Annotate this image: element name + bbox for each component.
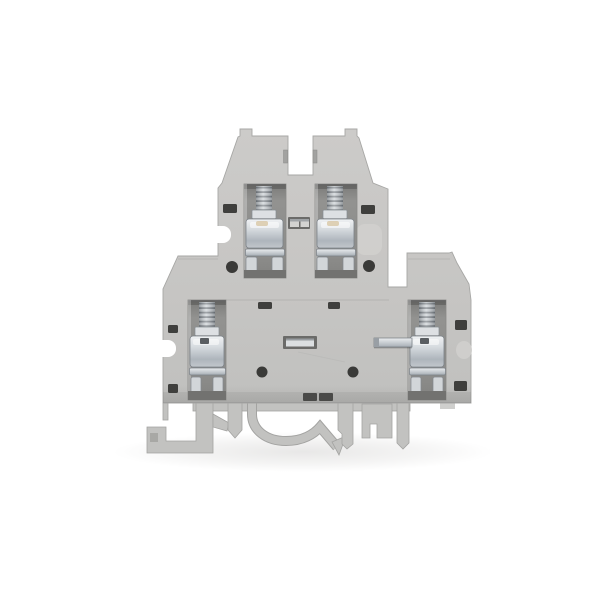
jumper-insert-shadow: [286, 339, 314, 341]
molded-recess: [456, 341, 472, 359]
vent-slot: [328, 302, 340, 309]
latch-slot: [319, 393, 333, 401]
foot-rail-end: [397, 403, 409, 449]
jumper-insert-shadow: [290, 219, 309, 222]
vent-slot: [258, 302, 272, 309]
vent-slot: [455, 320, 467, 330]
product-photo: [0, 0, 600, 600]
vent-slot: [168, 384, 178, 393]
foot-post-left: [228, 403, 242, 438]
foot-right-hook: [362, 404, 392, 438]
vent-slot: [361, 205, 375, 214]
funnel-contact-pin-right: [313, 150, 317, 163]
marker-hole: [226, 261, 238, 273]
vent-slot: [223, 204, 237, 213]
foot-tip-notch: [150, 433, 158, 442]
marker-hole: [257, 367, 268, 378]
terminal-block-illustration: [0, 0, 600, 600]
jumper-bar-tip: [374, 338, 379, 347]
foot-left-wall: [163, 403, 168, 420]
clamp-lower-left: [188, 300, 226, 400]
clamp-upper-left: [244, 184, 286, 278]
edge-cutout: [153, 340, 176, 357]
vent-slot: [454, 381, 467, 391]
clamp-lower-right: [408, 300, 446, 400]
edge-cutout: [207, 226, 231, 243]
vent-slot: [168, 325, 178, 333]
jumper-bar: [374, 338, 412, 347]
marker-hole: [363, 260, 375, 272]
molded-recess: [356, 224, 382, 255]
foot-right-tab: [440, 403, 455, 409]
jumper-bar-shadow: [374, 347, 412, 349]
marker-hole: [348, 367, 359, 378]
latch-slot: [303, 393, 317, 401]
funnel-contact-pin-left: [284, 150, 288, 163]
clamp-upper-right: [315, 184, 357, 278]
